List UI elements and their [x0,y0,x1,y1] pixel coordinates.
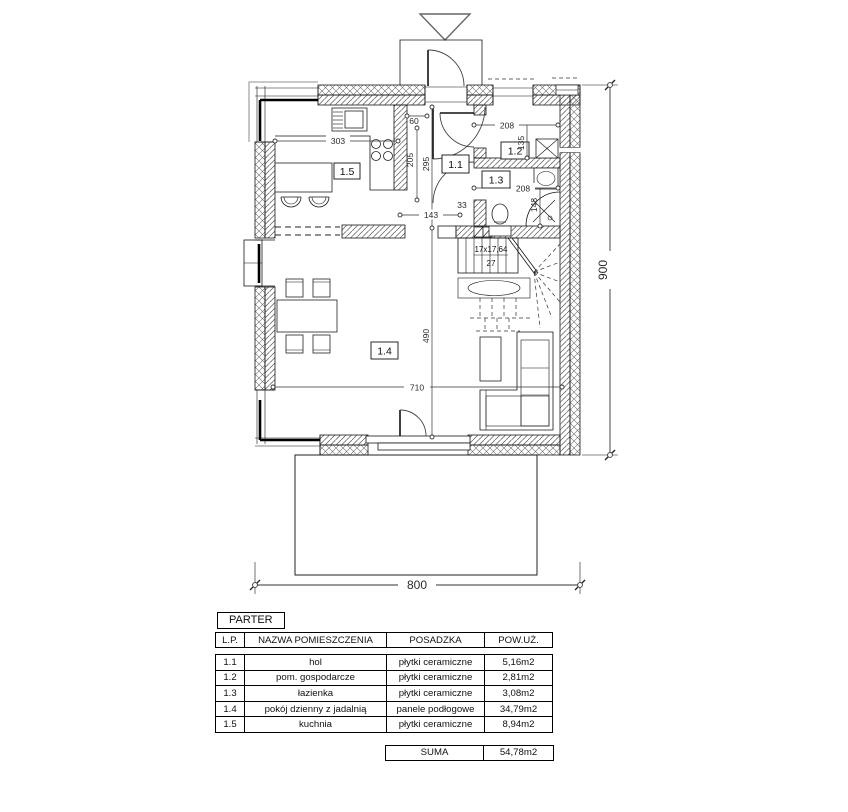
cell-floor: płytki ceramiczne [387,717,485,732]
col-header-floor: POSADZKA [387,633,485,647]
corner-window-top-left [255,85,318,142]
window-top-right [552,78,580,95]
staircase: 17x17,64 27 [458,238,560,331]
dim-148: 148 [529,198,539,212]
dim-303: 303 [331,136,345,146]
room-label-1-3: 1.3 [489,175,504,187]
room-label-1-1: 1.1 [448,159,463,171]
table-row: 1.5 kuchnia płytki ceramiczne 8,94m2 [216,717,552,732]
table-row: 1.4 pokój dzienny z jadalnią panele podł… [216,702,552,718]
cell-floor: płytki ceramiczne [387,655,485,670]
entrance-arrow-icon [420,14,470,40]
schedule-body: 1.1 hol płytki ceramiczne 5,16m2 1.2 pom… [215,654,553,733]
terrace [295,455,537,575]
cell-floor: płytki ceramiczne [387,671,485,686]
stairs-spec-text: 17x17,64 [475,245,508,254]
col-header-lp: L.P. [216,633,245,647]
table-row: 1.3 łazienka płytki ceramiczne 3,08m2 [216,686,552,702]
cell-area: 8,94m2 [485,717,552,732]
summary-value: 54,78m2 [484,746,553,760]
dim-135: 135 [516,136,526,150]
cell-floor: panele podłogowe [387,702,485,717]
col-header-name: NAZWA POMIESZCZENIA [245,633,387,647]
cell-lp: 1.4 [216,702,245,717]
terrace-sliding-door [366,436,470,450]
room-label-1-5: 1.5 [340,166,355,178]
table-row: 1.1 hol płytki ceramiczne 5,16m2 [216,655,552,671]
cell-name: łazienka [245,686,387,701]
cell-area: 5,16m2 [485,655,552,670]
room-label-1-4: 1.4 [377,346,392,358]
cell-area: 2,81m2 [485,671,552,686]
kitchen-island [275,163,332,207]
washing-machine [536,139,558,158]
dim-205: 205 [405,153,415,167]
schedule-summary-row: SUMA 54,78m2 [385,745,554,761]
door-room12 [440,113,474,147]
cell-lp: 1.2 [216,671,245,686]
cell-area: 3,08m2 [485,686,552,701]
cell-area: 34,79m2 [485,702,552,717]
dim-490: 490 [421,329,431,343]
col-header-area: POW.UŻ. [485,633,552,647]
window-room12 [488,79,536,105]
window-left [244,240,275,286]
dim-208-room13: 208 [516,184,530,194]
schedule-header-row: L.P. NAZWA POMIESZCZENIA POSADZKA POW.UŻ… [215,632,553,648]
dim-208-room12: 208 [500,121,514,131]
schedule-title: PARTER [217,612,285,629]
cell-name: kuchnia [245,717,387,732]
dim-800: 800 [407,578,427,592]
summary-label: SUMA [386,746,484,760]
coffee-table [480,337,501,381]
cell-lp: 1.5 [216,717,245,732]
dim-60: 60 [409,116,419,126]
dim-33: 33 [457,200,467,210]
room-schedule: PARTER L.P. NAZWA POMIESZCZENIA POSADZKA… [215,610,554,761]
dim-295: 295 [421,157,431,171]
cell-floor: płytki ceramiczne [387,686,485,701]
toilet [489,204,511,236]
kitchen-sink [332,108,367,131]
cell-name: hol [245,655,387,670]
dim-710: 710 [410,383,424,393]
stairs-tread-text: 27 [487,259,496,268]
dining-table [277,279,337,353]
table-row: 1.2 pom. gospodarcze płytki ceramiczne 2… [216,671,552,687]
bathroom-sink [534,168,558,189]
cell-lp: 1.3 [216,686,245,701]
floor-plan-page: 17x17,64 27 1.1 1.2 1.3 1.4 1.5 [0,0,848,812]
cell-lp: 1.1 [216,655,245,670]
dim-900: 900 [596,260,610,280]
dim-143: 143 [424,210,438,220]
cell-name: pom. gospodarcze [245,671,387,686]
cell-name: pokój dzienny z jadalnią [245,702,387,717]
corner-window-bottom-left [255,390,320,455]
terrace-swing-door [400,410,426,436]
